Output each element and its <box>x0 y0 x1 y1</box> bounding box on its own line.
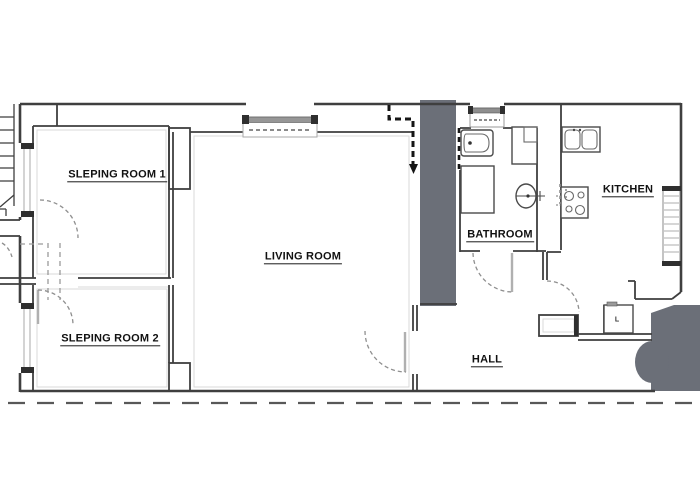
exterior-stairs-mass <box>635 305 700 391</box>
label-boiler: L <box>615 317 619 324</box>
window-living-room <box>242 115 318 137</box>
label-bathroom: BATHROOM <box>466 228 534 242</box>
interior-staircase <box>0 104 14 216</box>
label-sleeping-room-1: SLEPING ROOM 1 <box>67 168 167 182</box>
window-sleeping1 <box>21 143 34 217</box>
label-kitchen: KITCHEN <box>602 183 654 197</box>
bathtub <box>461 130 493 156</box>
double-sink <box>562 127 600 152</box>
window-kitchen <box>662 186 681 266</box>
entry-chimney-wall <box>420 100 456 306</box>
shower-tray <box>461 166 494 213</box>
floor-plan-drawing <box>0 0 700 500</box>
label-hall: HALL <box>471 353 503 367</box>
washbasin <box>516 184 545 208</box>
floor-plan-canvas: SLEPING ROOM 1 SLEPING ROOM 2 LIVING ROO… <box>0 0 700 500</box>
label-sleeping-room-2: SLEPING ROOM 2 <box>60 332 160 346</box>
storage-unit <box>512 127 537 164</box>
window-sleeping2 <box>21 303 34 373</box>
window-bathroom <box>468 106 505 127</box>
hall-counter <box>539 315 578 336</box>
closet-dashed-outline <box>20 243 60 300</box>
label-living-room: LIVING ROOM <box>264 250 342 264</box>
